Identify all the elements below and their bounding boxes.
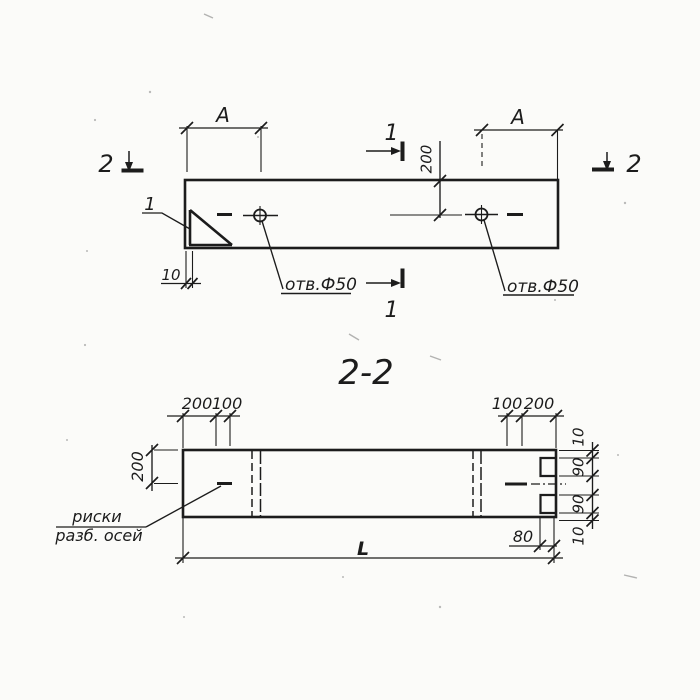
hole-label-right: отв.Ф50 (484, 220, 579, 297)
dim-length-group: L (175, 517, 563, 564)
section-marker-1-top-label: 1 (385, 121, 399, 146)
speck (349, 334, 359, 340)
section-title: 2-2 (338, 353, 394, 393)
section-marker-2-left: 2 (98, 150, 143, 178)
axes-label-line2: разб. осей (54, 526, 142, 545)
detail-callout: 1 (142, 194, 190, 229)
section-marker-1-bottom-label: 1 (385, 298, 399, 323)
section-marker-2-left-label: 2 (98, 150, 113, 178)
dim-90-bottom-text: 90 (570, 494, 588, 513)
dim-200-left-text: 200 (182, 394, 213, 413)
speck (617, 454, 619, 456)
notch-bottom (541, 495, 557, 513)
dim-200-right-text: 200 (524, 394, 555, 413)
extension-lines (187, 126, 261, 172)
speck (624, 575, 637, 578)
dim-90-top-text: 90 (570, 457, 588, 476)
section-marker-1-bottom: 1 (366, 269, 403, 324)
right-arrow-icon (391, 147, 401, 155)
dim-10-bottom-text: 10 (570, 526, 588, 545)
dim-10-top-view: 10 (161, 251, 201, 289)
axes-label: риски разб. осей (54, 486, 221, 545)
dim-80-group: 80 (509, 516, 560, 552)
speck (94, 119, 96, 121)
extension-lines (507, 413, 556, 448)
notch-top (541, 458, 557, 476)
drawing-sheet: 1 отв.Ф50 отв.Ф50 (0, 0, 700, 700)
dim-100-left-text: 100 (212, 394, 243, 413)
dim-200-text: 200 (418, 145, 436, 174)
detail-callout-leader (142, 213, 190, 229)
hole-right (465, 205, 523, 224)
axes-label-line1: риски (71, 507, 121, 526)
speck (624, 202, 626, 204)
hole-label-left: отв.Ф50 (262, 221, 357, 295)
dim-80-text: 80 (513, 527, 533, 546)
dim-a-left-text: A (214, 103, 230, 127)
dim-10-top-text: 10 (570, 427, 588, 446)
hole-left (217, 206, 278, 225)
dim-top-left-group: 200 100 (167, 394, 242, 448)
right-arrow-icon (391, 279, 401, 287)
technical-drawing: 1 отв.Ф50 отв.Ф50 (0, 0, 700, 700)
hole-label-left-text: отв.Ф50 (285, 275, 357, 295)
speck (204, 14, 213, 18)
hole-label-right-text: отв.Ф50 (507, 277, 579, 297)
beam-outline-top (185, 180, 558, 248)
top-view: 1 отв.Ф50 отв.Ф50 (98, 103, 641, 323)
speck (257, 136, 259, 138)
speck (554, 299, 556, 301)
dim-right-chain: 10 90 90 10 (559, 427, 599, 545)
dim-top-right-group: 100 200 (492, 394, 564, 448)
hole-label-right-leader (484, 220, 505, 291)
dim-10-text: 10 (161, 266, 180, 284)
dim-length-text: L (357, 538, 369, 560)
dim-left-200-text: 200 (128, 451, 147, 482)
dim-a-right-text: A (509, 105, 525, 129)
dim-a-left: A (179, 103, 268, 172)
speck (183, 616, 185, 618)
speck (149, 91, 151, 93)
speck (86, 250, 88, 252)
beam-outline-section (183, 450, 556, 517)
scan-specks (66, 14, 637, 618)
dim-100-right-text: 100 (492, 394, 523, 413)
detail-callout-label: 1 (144, 194, 155, 215)
section-view: 2-2 200 100 100 200 (54, 353, 599, 564)
extension-lines (183, 413, 230, 448)
dim-left-200-group: 200 (128, 444, 178, 491)
speck (430, 356, 441, 360)
speck (439, 606, 441, 608)
section-marker-2-right-label: 2 (626, 150, 641, 178)
section-marker-2-right: 2 (592, 150, 642, 178)
dim-a-right: A (474, 105, 564, 179)
speck (66, 439, 68, 441)
speck (342, 576, 344, 578)
hole-label-left-leader (262, 221, 283, 289)
section-marker-1-top: 1 (366, 121, 403, 161)
speck (84, 344, 86, 346)
